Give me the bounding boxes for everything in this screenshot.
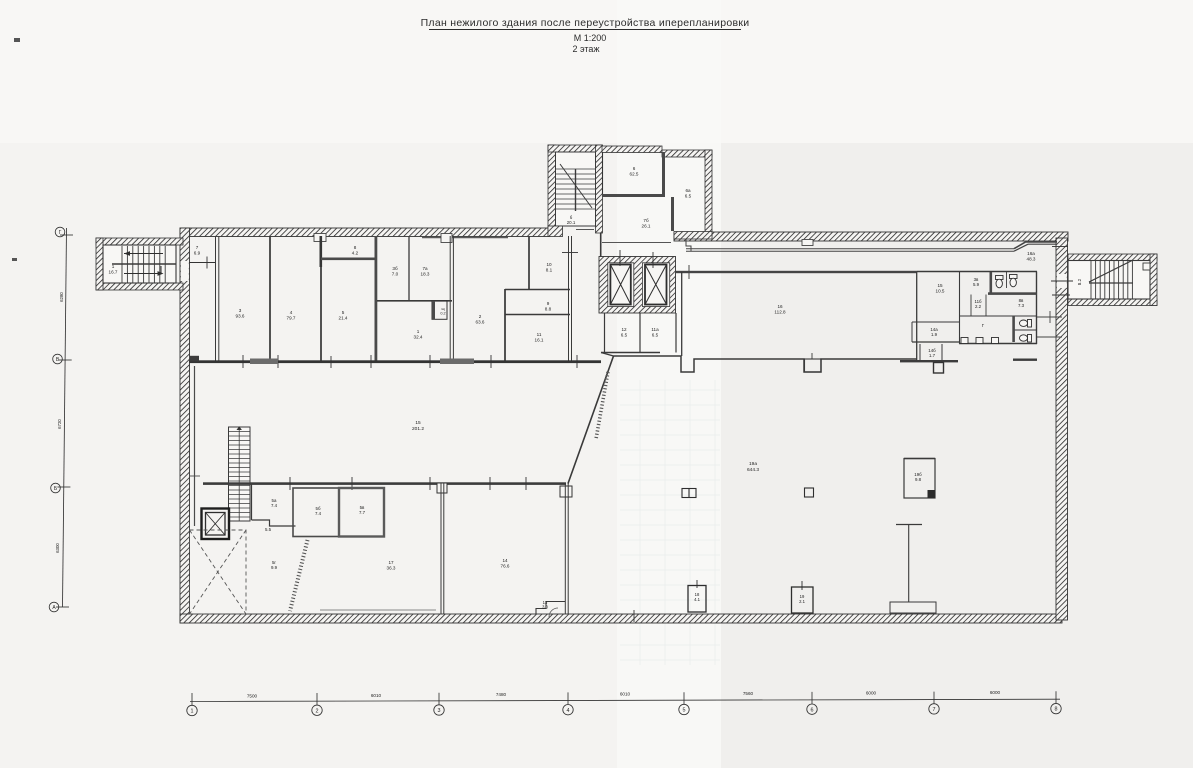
svg-text:8.2: 8.2: [1077, 278, 1082, 285]
svg-text:4: 4: [290, 310, 293, 315]
svg-text:8.1: 8.1: [546, 268, 553, 273]
svg-text:6010: 6010: [371, 693, 382, 698]
svg-text:2 этаж: 2 этаж: [573, 44, 600, 54]
svg-text:112.8: 112.8: [774, 310, 786, 315]
svg-text:1.9: 1.9: [931, 332, 938, 337]
svg-text:11а: 11а: [651, 327, 659, 332]
svg-text:16а: 16а: [1027, 251, 1035, 256]
svg-text:9.8: 9.8: [915, 477, 922, 482]
svg-text:76.6: 76.6: [501, 564, 510, 569]
svg-text:0.2: 0.2: [440, 312, 445, 316]
svg-text:644.3: 644.3: [747, 467, 759, 473]
svg-text:20.1: 20.1: [567, 220, 576, 225]
svg-text:21.4: 21.4: [339, 316, 348, 321]
svg-text:7480: 7480: [496, 692, 507, 697]
svg-text:Г: Г: [59, 230, 62, 236]
svg-text:79.7: 79.7: [287, 316, 296, 321]
svg-text:36.3: 36.3: [387, 566, 396, 571]
svg-text:32.4: 32.4: [414, 335, 423, 340]
svg-text:5: 5: [342, 310, 345, 315]
svg-text:11: 11: [537, 332, 542, 337]
svg-text:2.1: 2.1: [799, 599, 805, 604]
svg-text:План нежилого здания после пер: План нежилого здания после переустройств…: [421, 17, 750, 29]
svg-text:6000: 6000: [990, 690, 1001, 695]
svg-text:26.1: 26.1: [642, 224, 651, 229]
svg-text:7а: 7а: [422, 266, 428, 271]
svg-text:48.3: 48.3: [1027, 257, 1036, 262]
svg-text:17: 17: [388, 560, 394, 565]
svg-text:6720: 6720: [57, 419, 62, 429]
svg-text:7560: 7560: [743, 691, 754, 696]
svg-text:1: 1: [112, 264, 115, 269]
svg-text:4.2: 4.2: [352, 251, 359, 256]
svg-text:М 1:200: М 1:200: [574, 33, 607, 43]
svg-text:3б: 3б: [392, 266, 398, 271]
svg-text:3: 3: [239, 308, 242, 313]
svg-text:6300: 6300: [55, 543, 60, 553]
svg-text:5.9: 5.9: [973, 282, 980, 287]
svg-text:12: 12: [621, 327, 627, 332]
svg-text:62.5: 62.5: [630, 172, 639, 177]
svg-text:9: 9: [547, 301, 550, 306]
svg-text:93.6: 93.6: [236, 314, 245, 319]
svg-text:18.3: 18.3: [421, 272, 430, 277]
svg-text:6а: 6а: [685, 188, 691, 193]
svg-text:15: 15: [937, 283, 943, 288]
svg-text:7б: 7б: [643, 218, 649, 223]
svg-text:6: 6: [633, 166, 636, 171]
svg-text:10.5: 10.5: [936, 289, 945, 294]
svg-text:16: 16: [777, 304, 783, 309]
svg-text:8.8: 8.8: [545, 307, 552, 312]
svg-text:8: 8: [1055, 707, 1058, 713]
svg-text:15: 15: [415, 420, 421, 426]
svg-text:6.5: 6.5: [652, 333, 659, 338]
svg-text:5.5: 5.5: [265, 527, 272, 532]
svg-text:7.4: 7.4: [271, 503, 278, 508]
svg-text:19а: 19а: [749, 461, 757, 467]
svg-text:6000: 6000: [866, 690, 877, 695]
svg-text:1: 1: [417, 329, 420, 334]
svg-text:6.9: 6.9: [194, 251, 201, 256]
svg-text:5: 5: [683, 708, 686, 714]
svg-text:16.1: 16.1: [535, 338, 544, 343]
svg-text:6280: 6280: [59, 292, 64, 302]
svg-text:1.7: 1.7: [929, 353, 936, 358]
svg-text:3: 3: [438, 708, 441, 714]
svg-text:7: 7: [933, 707, 936, 713]
svg-text:2.2: 2.2: [975, 304, 982, 309]
svg-text:7.3: 7.3: [1018, 303, 1025, 308]
svg-text:4: 4: [567, 708, 570, 714]
svg-text:4.1: 4.1: [694, 597, 700, 602]
svg-text:6.5: 6.5: [685, 194, 692, 199]
svg-text:7.0: 7.0: [392, 272, 399, 277]
svg-text:6010: 6010: [620, 692, 631, 697]
svg-text:7: 7: [196, 245, 199, 250]
svg-text:201.2: 201.2: [412, 426, 424, 432]
svg-text:6: 6: [811, 707, 814, 713]
svg-text:7.4: 7.4: [315, 511, 322, 516]
svg-text:7.7: 7.7: [359, 510, 366, 515]
svg-text:7500: 7500: [247, 694, 258, 699]
svg-text:63.6: 63.6: [476, 320, 485, 325]
svg-text:8: 8: [354, 245, 357, 250]
svg-text:16.7: 16.7: [109, 270, 118, 275]
svg-text:1: 1: [191, 709, 194, 715]
svg-text:2: 2: [479, 314, 482, 319]
svg-text:2: 2: [316, 708, 319, 714]
svg-text:3.0: 3.0: [542, 605, 548, 610]
svg-text:9.9: 9.9: [271, 565, 278, 570]
svg-text:14: 14: [502, 558, 508, 563]
svg-text:6.5: 6.5: [621, 333, 628, 338]
svg-text:10: 10: [546, 262, 552, 267]
